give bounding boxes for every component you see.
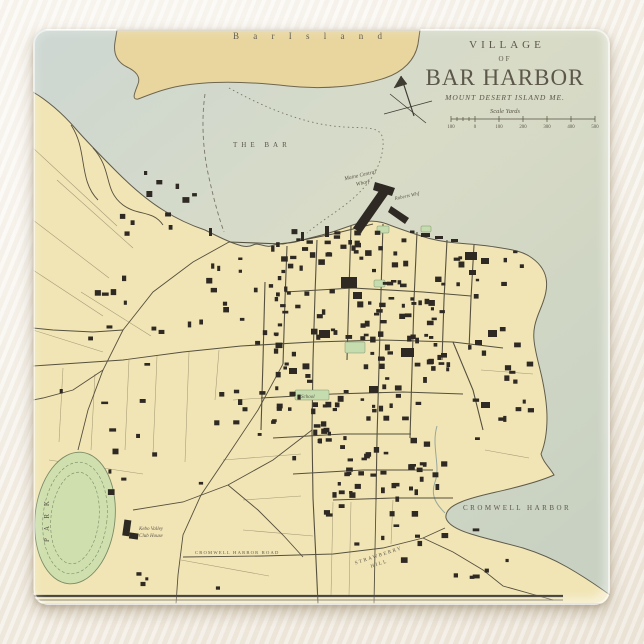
- building: [303, 363, 310, 369]
- building: [192, 193, 197, 196]
- building: [431, 366, 436, 371]
- building: [436, 484, 440, 490]
- building: [278, 276, 282, 280]
- building: [271, 246, 274, 252]
- building: [423, 377, 427, 383]
- building: [199, 482, 203, 485]
- building: [334, 231, 340, 234]
- building: [372, 409, 377, 413]
- building: [344, 390, 349, 393]
- building: [378, 331, 383, 337]
- building: [206, 278, 212, 284]
- building: [125, 231, 130, 235]
- building: [271, 420, 276, 424]
- building: [276, 242, 280, 247]
- building: [280, 304, 286, 307]
- building: [122, 276, 126, 282]
- building: [410, 297, 414, 300]
- building: [473, 575, 480, 579]
- building: [292, 456, 296, 460]
- title-bar-harbor: BAR HARBOR: [426, 65, 585, 90]
- building: [285, 363, 289, 366]
- building: [394, 524, 400, 527]
- building: [316, 335, 320, 340]
- building: [277, 404, 283, 409]
- building: [500, 327, 506, 331]
- building: [176, 184, 180, 189]
- building: [485, 569, 489, 573]
- building: [288, 264, 293, 269]
- glass-coaster: VILLAGE OF BAR HARBOR MOUNT DESERT ISLAN…: [33, 29, 610, 605]
- building: [434, 343, 438, 347]
- building: [348, 458, 353, 461]
- building: [379, 303, 385, 307]
- building: [360, 336, 365, 340]
- building: [136, 572, 141, 576]
- building: [501, 282, 507, 286]
- building: [402, 304, 405, 308]
- building: [410, 231, 415, 234]
- building: [334, 235, 340, 239]
- building: [281, 270, 285, 273]
- product-photo-background: VILLAGE OF BAR HARBOR MOUNT DESERT ISLAN…: [0, 0, 644, 644]
- building: [385, 345, 390, 351]
- building: [307, 380, 313, 383]
- building: [102, 293, 109, 296]
- building: [447, 362, 451, 367]
- building: [429, 336, 433, 339]
- building: [108, 489, 115, 495]
- building: [409, 487, 413, 491]
- building: [223, 307, 229, 312]
- building: [383, 416, 389, 421]
- label-the-bar: THE BAR: [233, 141, 291, 149]
- building: [385, 377, 389, 380]
- building: [412, 511, 418, 517]
- building: [389, 297, 395, 300]
- building: [504, 375, 509, 381]
- building: [305, 374, 310, 378]
- building: [318, 438, 322, 443]
- building: [380, 471, 386, 475]
- scale-label: Scale Yards: [490, 108, 521, 115]
- building: [60, 389, 63, 393]
- building: [243, 407, 248, 411]
- building: [364, 364, 369, 369]
- building: [282, 311, 288, 314]
- label-cromwell-harbor: CROMWELL HARBOR: [463, 504, 571, 512]
- building: [441, 283, 445, 286]
- building: [322, 309, 325, 315]
- building: [417, 468, 423, 473]
- building: [428, 359, 434, 364]
- building: [381, 487, 385, 493]
- building: [513, 380, 517, 384]
- building: [374, 313, 379, 316]
- building: [503, 416, 506, 422]
- building: [338, 482, 341, 486]
- building: [366, 452, 372, 457]
- building: [216, 586, 220, 589]
- building: [372, 405, 375, 408]
- building: [513, 251, 517, 254]
- building: [523, 400, 526, 404]
- building: [292, 352, 296, 357]
- building: [214, 420, 219, 425]
- label-park: P A R K: [43, 498, 51, 542]
- svg-text:Club House: Club House: [139, 534, 164, 539]
- building: [111, 289, 117, 295]
- building: [364, 334, 369, 337]
- svg-text:100: 100: [495, 125, 503, 130]
- building: [339, 490, 345, 494]
- building: [354, 231, 361, 236]
- building: [255, 341, 260, 345]
- svg-text:200: 200: [519, 125, 527, 130]
- building: [516, 407, 522, 411]
- building: [348, 240, 352, 245]
- building: [431, 307, 434, 310]
- building: [281, 256, 288, 261]
- building: [169, 225, 173, 230]
- building: [290, 256, 296, 259]
- building: [415, 338, 419, 344]
- building: [411, 438, 418, 444]
- building: [275, 386, 278, 390]
- building: [428, 300, 435, 306]
- building: [326, 253, 333, 257]
- building: [358, 471, 364, 475]
- building: [239, 270, 242, 273]
- building: [275, 297, 278, 301]
- building: [476, 279, 479, 282]
- building: [317, 314, 323, 318]
- building: [326, 438, 332, 442]
- building: [332, 492, 336, 498]
- label-bar-island: B a r I s l a n d: [233, 31, 388, 41]
- building: [390, 511, 395, 516]
- building: [152, 327, 157, 331]
- building: [402, 238, 407, 242]
- building: [159, 330, 165, 334]
- building: [372, 269, 376, 272]
- building: [456, 282, 460, 286]
- building: [370, 337, 376, 343]
- building: [418, 300, 422, 305]
- building: [269, 284, 273, 288]
- building: [182, 197, 189, 203]
- building: [344, 472, 350, 476]
- building: [349, 492, 355, 498]
- building: [454, 573, 458, 577]
- building: [441, 461, 447, 466]
- building: [263, 330, 267, 335]
- building: [504, 258, 507, 262]
- building: [415, 489, 419, 495]
- building: [407, 336, 412, 342]
- building: [382, 384, 386, 389]
- building: [415, 535, 420, 538]
- building: [325, 241, 331, 245]
- building: [314, 424, 321, 428]
- building: [258, 433, 262, 436]
- building: [381, 357, 385, 360]
- building: [101, 402, 108, 405]
- building: [290, 392, 296, 396]
- building: [361, 323, 366, 328]
- building: [120, 214, 125, 219]
- building: [343, 436, 346, 440]
- building: [442, 533, 449, 538]
- building: [418, 541, 423, 546]
- building: [370, 352, 374, 355]
- building: [396, 394, 401, 398]
- building: [403, 261, 408, 267]
- building: [474, 294, 479, 299]
- building: [459, 262, 465, 268]
- building: [107, 325, 113, 328]
- building: [144, 363, 150, 366]
- building: [433, 472, 439, 477]
- building: [276, 343, 283, 349]
- building: [374, 447, 379, 453]
- building: [514, 343, 521, 348]
- building: [441, 353, 447, 358]
- building: [136, 434, 140, 438]
- building: [321, 421, 326, 426]
- building: [238, 399, 242, 405]
- building: [283, 366, 287, 369]
- building: [333, 408, 337, 411]
- building: [520, 264, 524, 268]
- building: [359, 257, 363, 260]
- building: [140, 399, 146, 403]
- building: [108, 469, 111, 473]
- building: [284, 287, 287, 292]
- building: [146, 191, 152, 197]
- building: [468, 345, 471, 349]
- building: [528, 408, 534, 412]
- building: [211, 263, 214, 268]
- title-subtitle: MOUNT DESERT ISLAND ME.: [444, 93, 565, 102]
- svg-text:500: 500: [591, 125, 599, 130]
- title-village: VILLAGE: [469, 39, 545, 51]
- map-print: VILLAGE OF BAR HARBOR MOUNT DESERT ISLAN…: [33, 29, 610, 605]
- building: [109, 428, 116, 431]
- building: [454, 258, 461, 261]
- building: [310, 252, 315, 258]
- label-cromwell-harbor-road: CROMWELL HARBOR ROAD: [195, 550, 280, 555]
- building: [278, 323, 282, 326]
- building: [427, 321, 434, 326]
- building: [152, 452, 157, 456]
- building: [411, 302, 416, 305]
- svg-text:400: 400: [567, 125, 575, 130]
- building: [88, 337, 93, 341]
- building: [276, 292, 280, 296]
- building: [416, 402, 422, 405]
- building: [121, 478, 126, 481]
- building: [328, 432, 331, 436]
- building: [380, 320, 387, 323]
- svg-text:Kebo Valley: Kebo Valley: [138, 527, 164, 532]
- building: [340, 245, 346, 249]
- building: [482, 351, 486, 356]
- title-of: OF: [499, 55, 512, 63]
- building: [405, 313, 412, 317]
- building: [323, 404, 328, 407]
- building: [324, 510, 330, 515]
- building: [156, 180, 162, 184]
- building: [473, 528, 480, 531]
- building: [355, 484, 361, 489]
- building: [217, 266, 220, 271]
- building: [375, 231, 381, 235]
- building: [302, 247, 308, 251]
- building: [338, 396, 344, 402]
- building: [384, 452, 389, 455]
- building: [223, 302, 227, 306]
- building: [346, 335, 353, 339]
- building: [238, 258, 242, 261]
- building: [420, 477, 424, 482]
- building: [437, 355, 441, 360]
- building: [395, 385, 402, 390]
- building: [357, 301, 363, 307]
- building: [300, 266, 303, 271]
- building: [368, 301, 371, 304]
- building: [307, 240, 313, 244]
- building: [335, 402, 340, 407]
- building: [392, 262, 398, 267]
- building: [370, 474, 376, 477]
- building: [331, 329, 335, 332]
- building: [141, 582, 146, 586]
- building: [365, 250, 372, 256]
- building: [379, 364, 384, 369]
- building: [439, 362, 445, 365]
- building: [366, 416, 370, 420]
- svg-text:300: 300: [543, 125, 551, 130]
- building: [321, 429, 327, 434]
- building: [330, 289, 335, 293]
- building: [318, 259, 325, 265]
- building: [402, 417, 409, 421]
- label-school: School: [301, 395, 315, 400]
- building: [354, 250, 359, 254]
- building: [355, 243, 361, 248]
- building: [424, 334, 428, 337]
- building: [376, 309, 383, 313]
- building: [390, 403, 393, 408]
- building: [275, 334, 278, 337]
- building: [391, 280, 396, 283]
- building: [498, 417, 504, 420]
- building: [475, 437, 480, 440]
- building: [506, 559, 509, 562]
- building: [276, 372, 281, 378]
- building: [304, 292, 309, 296]
- building: [295, 305, 300, 309]
- building: [234, 390, 239, 394]
- building: [440, 310, 445, 313]
- building: [199, 320, 203, 325]
- building: [288, 407, 292, 411]
- building: [95, 290, 101, 296]
- building: [254, 288, 258, 293]
- building: [446, 367, 449, 371]
- building: [131, 220, 135, 225]
- building: [399, 314, 405, 319]
- building: [388, 351, 394, 354]
- building: [361, 398, 365, 401]
- building: [432, 318, 437, 321]
- building: [287, 291, 291, 294]
- building: [505, 365, 511, 370]
- building: [259, 391, 265, 395]
- building: [346, 468, 353, 472]
- building: [423, 464, 427, 467]
- building: [415, 363, 421, 367]
- svg-text:100: 100: [447, 125, 455, 130]
- building: [274, 349, 278, 354]
- building: [233, 420, 239, 424]
- building: [313, 430, 317, 436]
- building: [219, 392, 224, 397]
- building: [311, 329, 318, 335]
- building: [473, 399, 479, 402]
- building: [379, 406, 383, 412]
- building: [381, 536, 384, 540]
- building: [188, 322, 191, 328]
- building: [395, 497, 399, 502]
- building: [378, 246, 383, 250]
- building: [527, 362, 534, 367]
- building: [351, 245, 355, 250]
- building: [339, 504, 345, 508]
- building: [383, 282, 389, 285]
- building: [313, 402, 318, 407]
- building: [398, 280, 402, 284]
- building: [509, 371, 515, 374]
- building: [354, 542, 359, 545]
- building: [311, 409, 315, 415]
- building: [435, 277, 441, 282]
- building: [424, 442, 430, 447]
- building: [145, 577, 148, 580]
- building: [165, 212, 171, 216]
- building: [393, 483, 399, 487]
- building: [144, 171, 147, 175]
- building: [296, 238, 300, 241]
- building: [292, 229, 298, 234]
- building: [240, 318, 245, 321]
- building: [340, 445, 345, 449]
- building: [393, 251, 397, 255]
- building: [401, 557, 408, 563]
- building: [408, 464, 415, 470]
- building: [113, 449, 119, 455]
- building: [211, 288, 217, 293]
- building: [124, 301, 127, 305]
